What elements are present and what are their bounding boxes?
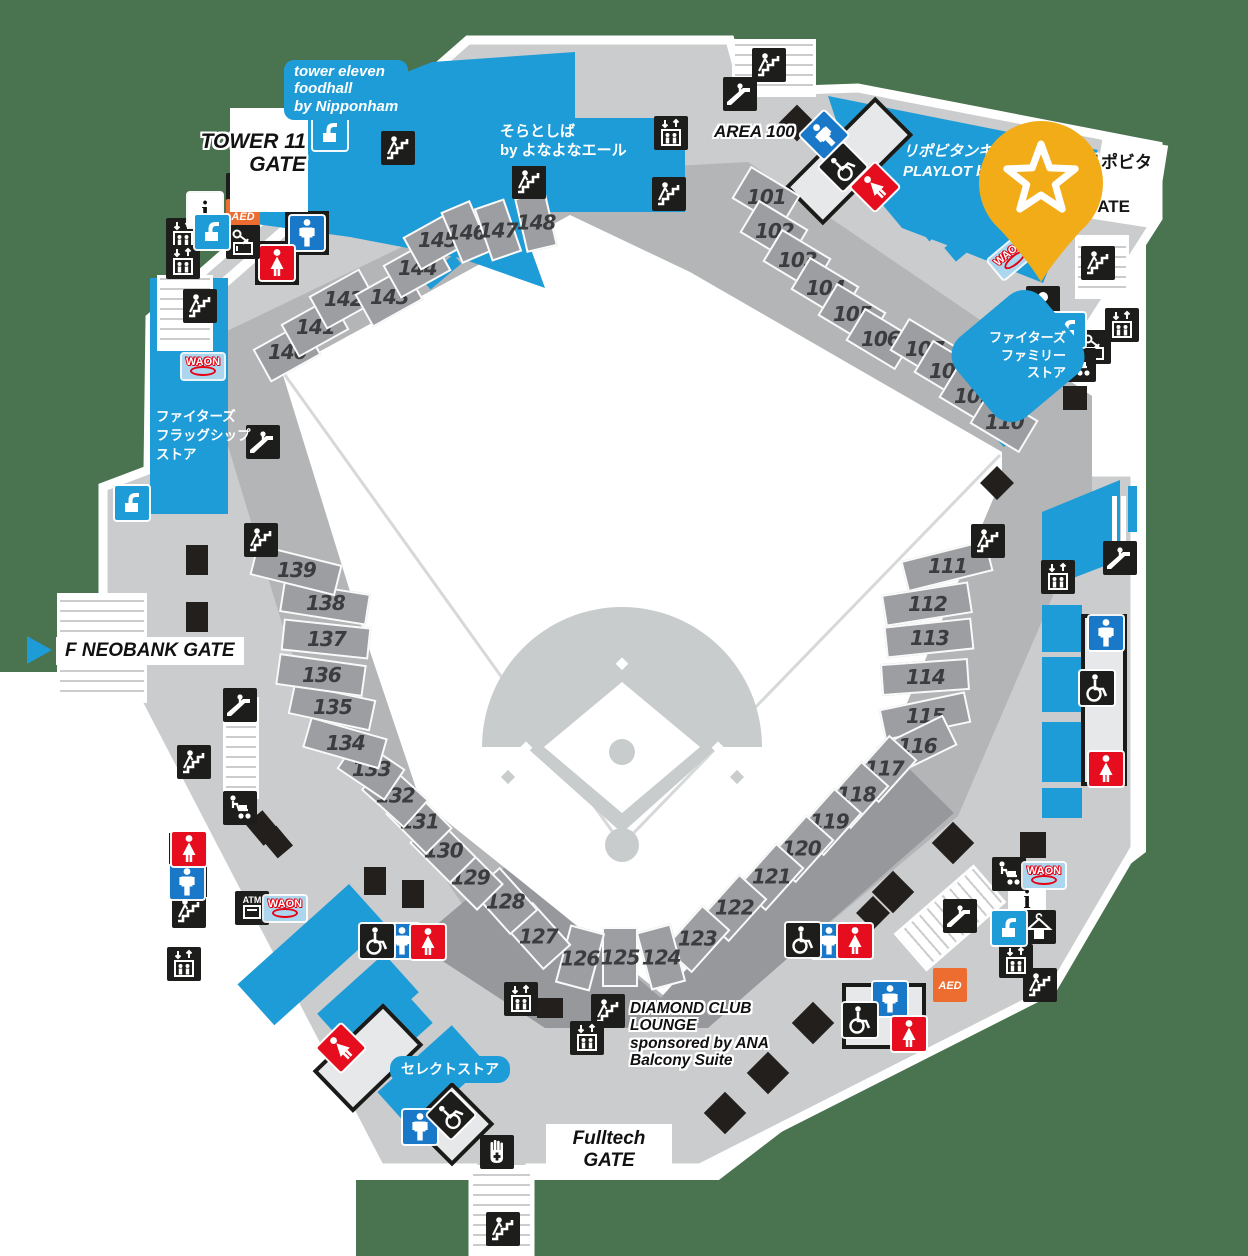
section-number: 126 <box>561 946 600 970</box>
svg-text:ATM: ATM <box>243 895 262 905</box>
section-number: 148 <box>517 210 556 234</box>
f-neobank-gate-label: F NEOBANK GATE <box>56 637 244 665</box>
door-mark <box>537 998 563 1018</box>
gate-arrow-icon <box>27 636 52 664</box>
section-number: 123 <box>678 927 717 951</box>
section-114[interactable]: 114 <box>880 658 970 696</box>
stairs-icon <box>652 177 686 211</box>
elevator-icon <box>654 116 688 150</box>
wheelchair-icon <box>786 923 820 957</box>
womens-restroom-icon <box>260 246 294 280</box>
mens-restroom-icon <box>170 865 204 899</box>
concession-area <box>1042 657 1082 712</box>
section-number: 121 <box>752 865 791 889</box>
area-100-label: AREA 100 <box>714 122 795 142</box>
svg-text:AED: AED <box>230 211 254 223</box>
stairs-icon <box>177 745 211 779</box>
water-fountain-icon <box>313 116 347 150</box>
section-number: 124 <box>642 945 681 969</box>
section-number: 113 <box>910 626 949 650</box>
door-mark <box>364 867 386 895</box>
section-number: 111 <box>928 554 967 578</box>
section-number: 136 <box>302 663 341 687</box>
section-number: 135 <box>313 695 352 719</box>
store-label-soratoshiba[interactable]: そらとしば by よなよなエール <box>490 120 637 166</box>
section-125[interactable]: 125 <box>602 927 638 987</box>
stroller-icon <box>992 857 1026 891</box>
elevator-icon <box>999 944 1033 978</box>
section-number: 147 <box>479 218 518 242</box>
mens-restroom-icon <box>873 982 907 1016</box>
store-label-foodhall[interactable]: tower eleven foodhall by Nipponham <box>284 60 408 120</box>
cloakroom-icon <box>1022 910 1056 944</box>
section-number: 139 <box>277 558 316 582</box>
home-plate-circle <box>605 828 639 862</box>
section-number: 112 <box>908 592 947 616</box>
womens-restroom-icon <box>892 1017 926 1051</box>
water-fountain-icon <box>195 215 229 249</box>
door-mark <box>402 880 424 908</box>
door-mark <box>186 602 208 632</box>
store-label-flagship[interactable]: ファイターズ フラッグシップ ストア <box>156 408 251 465</box>
concession-area <box>1128 486 1137 532</box>
fulltech-gate-label: Fulltech GATE <box>546 1124 672 1176</box>
store-label-family[interactable]: ファイターズ ファミリー ストア <box>966 329 1066 382</box>
tower11-gate-label: TOWER 11 GATE <box>158 130 306 176</box>
escalator-icon <box>246 425 280 459</box>
section-number: 137 <box>307 627 346 651</box>
wheelchair-icon <box>1080 671 1114 705</box>
waon-icon: WAON <box>264 896 306 921</box>
escalator-icon <box>723 77 757 111</box>
diamond-club-lounge-label: DIAMOND CLUB LOUNGE sponsored by ANA Bal… <box>630 1000 769 1069</box>
womens-restroom-icon <box>1089 752 1123 786</box>
concession-area <box>1042 722 1082 782</box>
escalator-icon <box>943 899 977 933</box>
stairs-icon <box>381 131 415 165</box>
door-mark <box>186 545 208 575</box>
elevator-icon <box>167 947 201 981</box>
elevator-icon <box>166 245 200 279</box>
section-number: 114 <box>906 665 945 689</box>
aed-icon: AED <box>933 968 967 1002</box>
pitchers-mound <box>609 739 635 765</box>
section-number: 125 <box>601 945 640 969</box>
womens-restroom-icon <box>172 832 206 866</box>
water-fountain-icon <box>992 911 1026 945</box>
store-label-select[interactable]: セレクトストア <box>390 1056 510 1083</box>
stairs-icon <box>752 48 786 82</box>
concession-area <box>1042 605 1082 652</box>
door-mark <box>1063 386 1087 410</box>
stadium-map: 1011021031041051061071081091101111121131… <box>0 0 1248 1256</box>
escalator-icon <box>1103 541 1137 575</box>
mens-restroom-icon <box>290 216 324 250</box>
stairs-icon <box>244 523 278 557</box>
womens-restroom-icon <box>411 925 445 959</box>
svg-text:AED: AED <box>937 980 961 992</box>
womens-restroom-icon <box>838 924 872 958</box>
stairs-icon <box>512 165 546 199</box>
section-number: 127 <box>519 924 558 948</box>
wheelchair-icon <box>843 1003 877 1037</box>
door-mark <box>1020 832 1046 858</box>
coin-locker-icon <box>226 225 260 259</box>
stairs-icon <box>971 524 1005 558</box>
stroller-icon <box>223 791 257 825</box>
waon-icon: WAON <box>182 354 224 379</box>
elevator-icon <box>504 982 538 1016</box>
stairs-icon <box>486 1212 520 1246</box>
escalator-icon <box>223 688 257 722</box>
waon-icon: WAON <box>1023 863 1065 888</box>
stairs-icon <box>183 289 217 323</box>
elevator-icon <box>570 1021 604 1055</box>
location-pin[interactable] <box>958 100 1126 290</box>
concession-area <box>1042 788 1082 818</box>
elevator-icon <box>1041 560 1075 594</box>
section-number: 134 <box>326 731 365 755</box>
mens-restroom-icon <box>1089 616 1123 650</box>
water-fountain-icon <box>115 486 149 520</box>
stairs-icon <box>172 894 206 928</box>
section-number: 138 <box>306 591 345 615</box>
section-number: 122 <box>715 896 754 920</box>
wheelchair-icon <box>360 924 394 958</box>
first-aid-icon <box>480 1135 514 1169</box>
